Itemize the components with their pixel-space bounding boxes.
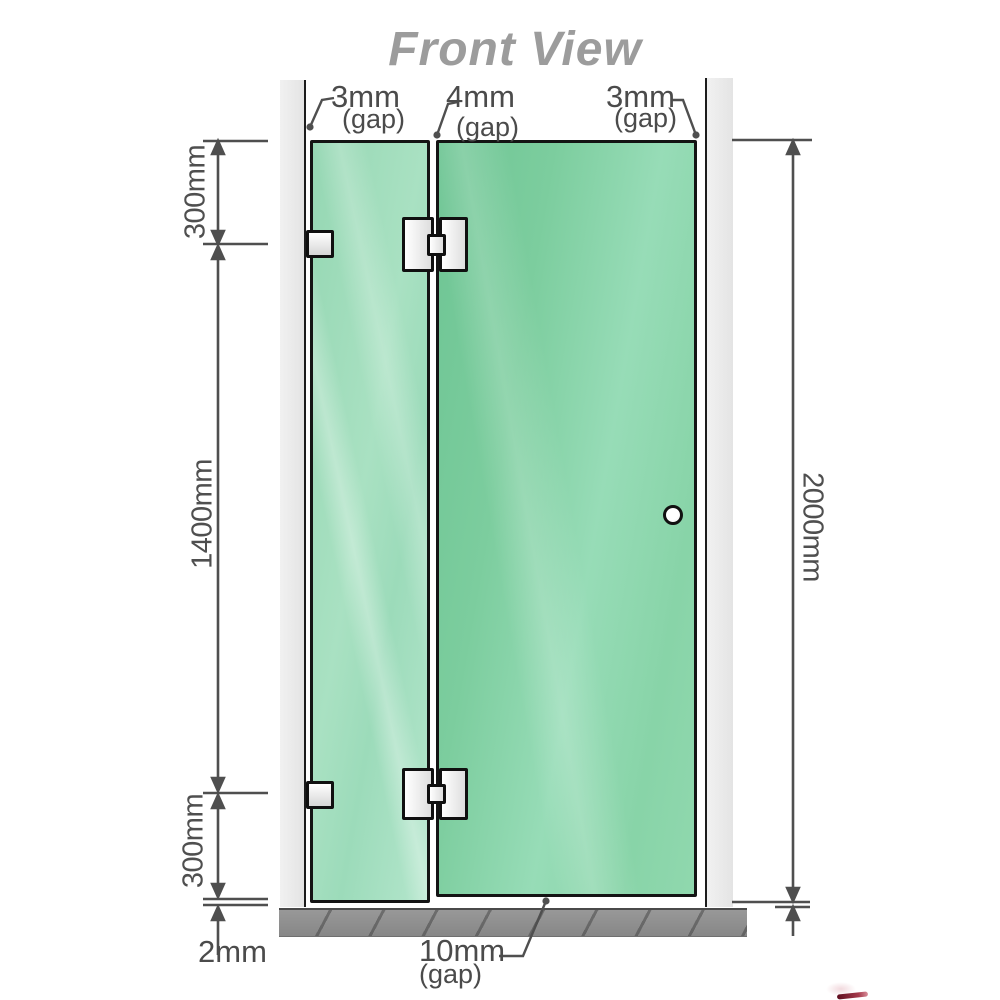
hinge-top xyxy=(402,217,468,272)
page-title: Front View xyxy=(280,22,750,77)
dim-label-left-middle: 1400mm xyxy=(187,459,220,569)
wall-bracket-top xyxy=(306,230,334,258)
gap-label-top-middle-unit: (gap) xyxy=(456,112,519,143)
dim-label-total-height: 2000mm xyxy=(796,472,829,582)
wall-bracket-bottom xyxy=(306,781,334,809)
wall-left xyxy=(280,80,306,907)
gap-label-bottom-unit: (gap) xyxy=(419,959,482,990)
dim-label-floor-gap: 2mm xyxy=(198,934,267,970)
hinge-bottom xyxy=(402,768,468,820)
dim-label-left-bottom: 300mm xyxy=(178,794,211,888)
wall-right xyxy=(705,78,733,907)
hinge-clamp-tab xyxy=(427,234,446,256)
dim-label-left-top: 300mm xyxy=(180,145,213,239)
gap-label-top-left-unit: (gap) xyxy=(342,104,405,135)
front-view-diagram: Front View xyxy=(0,0,1000,1000)
door-knob xyxy=(663,505,683,525)
gap-label-top-right-unit: (gap) xyxy=(614,103,677,134)
hinge-clamp-tab xyxy=(427,784,446,805)
gap-label-top-middle-value: 4mm xyxy=(446,79,515,115)
floor-base xyxy=(279,908,747,937)
glass-panel-door xyxy=(436,140,697,897)
